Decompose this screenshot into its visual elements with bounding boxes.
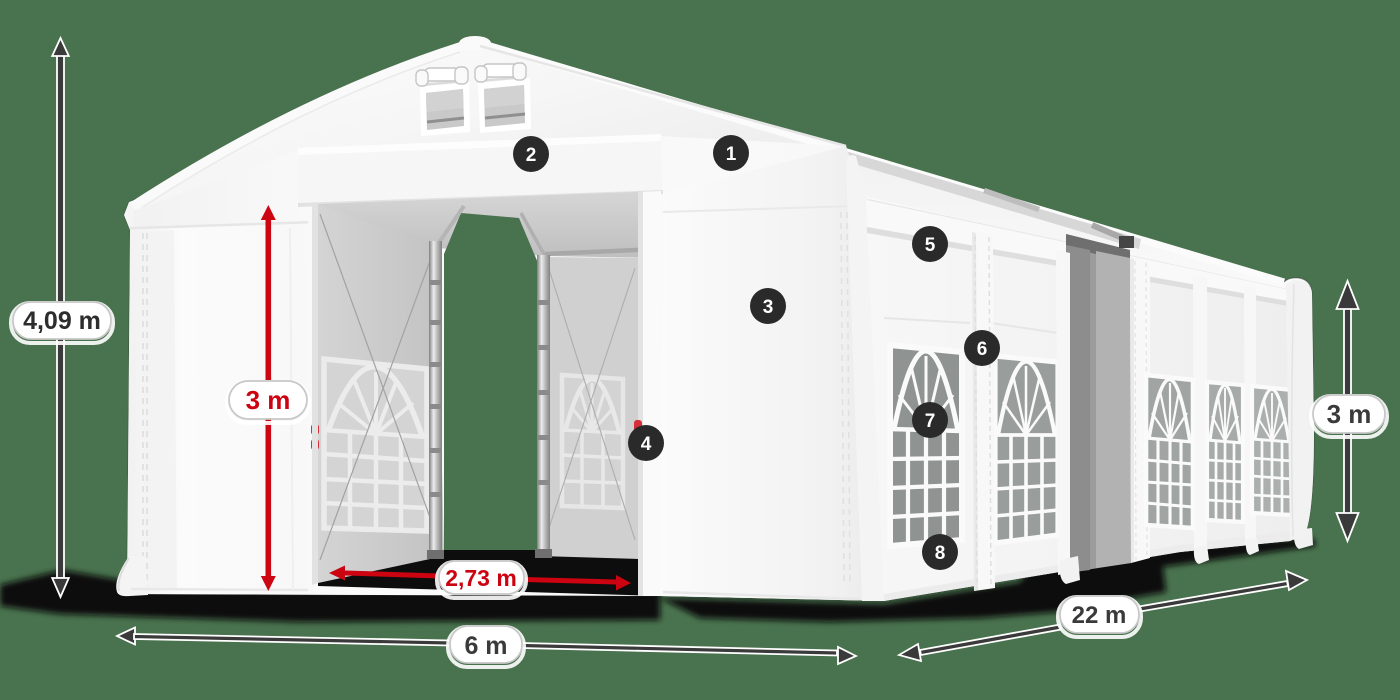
svg-text:6: 6 xyxy=(977,339,988,360)
svg-text:7: 7 xyxy=(925,411,936,432)
svg-text:4,09 m: 4,09 m xyxy=(23,307,101,335)
svg-text:1: 1 xyxy=(726,144,737,165)
svg-text:8: 8 xyxy=(935,543,946,564)
svg-text:22 m: 22 m xyxy=(1072,602,1127,629)
svg-text:2,73 m: 2,73 m xyxy=(445,565,517,591)
svg-text:3 m: 3 m xyxy=(246,385,291,415)
svg-text:3: 3 xyxy=(763,297,774,318)
svg-text:4: 4 xyxy=(641,434,652,455)
svg-text:6 m: 6 m xyxy=(464,632,507,660)
svg-text:3 m: 3 m xyxy=(1327,399,1372,429)
svg-text:5: 5 xyxy=(925,235,936,256)
svg-text:2: 2 xyxy=(526,145,537,166)
